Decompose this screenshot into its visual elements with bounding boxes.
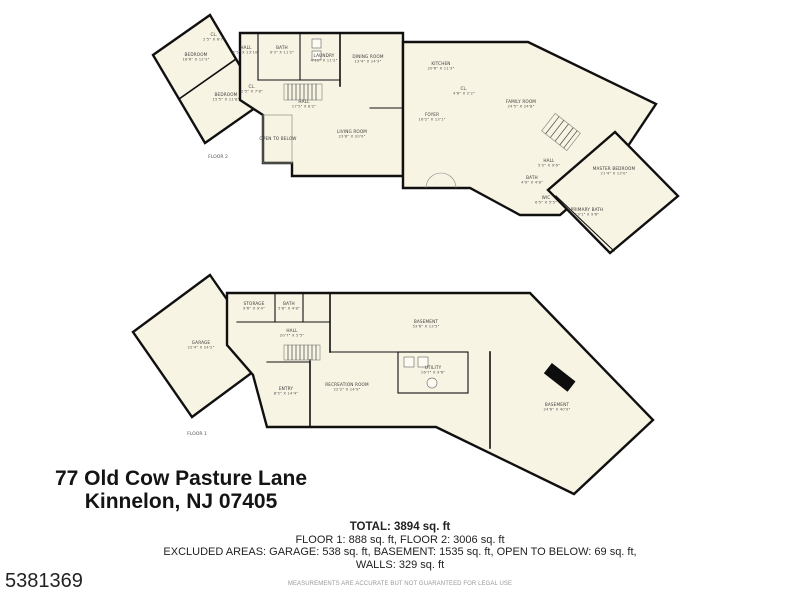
room-label-kitchen: KITCHEN20'6" X 11'3" (427, 61, 454, 71)
address-line1: 77 Old Cow Pasture Lane (50, 467, 312, 490)
utility-fixture-icon (404, 357, 414, 367)
summary-walls: WALLS: 329 sq. ft (0, 559, 800, 572)
room-label-basement: BASEMENT53'6" X 13'5" (412, 319, 439, 329)
floor1-plan: GARAGE22'4" X 24'2"STORAGE9'6" X 9'4"BAT… (133, 275, 653, 494)
room-label-laundry: LAUNDRY4'11" X 11'2" (310, 53, 337, 63)
water-heater-icon (427, 378, 437, 388)
property-address: 77 Old Cow Pasture Lane Kinnelon, NJ 074… (50, 467, 312, 513)
address-line2: Kinnelon, NJ 07405 (50, 490, 312, 513)
floor1-caption: FLOOR 1 (187, 431, 207, 437)
floor2-caption: FLOOR 2 (208, 154, 228, 160)
room-label-bedroom: BEDROOM15'5" X 11'8" (212, 92, 239, 102)
room-label-primary-bath: PRIMARY BATH13'1" X 9'6" (571, 207, 604, 217)
room-label-living-room: LIVING ROOM23'8" X 20'0" (337, 129, 367, 139)
disclaimer: MEASUREMENTS ARE ACCURATE BUT NOT GUARAN… (0, 581, 800, 587)
room-label-basement: BASEMENT24'6" X 40'9" (543, 402, 570, 412)
floor2-plan: BEDROOM16'6" X 12'3"BEDROOM15'5" X 11'8"… (153, 15, 678, 253)
summary-floors: FLOOR 1: 888 sq. ft, FLOOR 2: 3006 sq. f… (0, 534, 800, 547)
floor-plan-page: BEDROOM16'6" X 12'3"BEDROOM15'5" X 11'8"… (0, 0, 800, 600)
room-label-open-to-below: OPEN TO BELOW (259, 136, 296, 141)
room-label-bedroom: BEDROOM16'6" X 12'3" (182, 52, 209, 62)
summary-total: TOTAL: 3894 sq. ft (0, 521, 800, 534)
washer-icon (312, 39, 321, 48)
room-label-dining-room: DINING ROOM13'4" X 14'3" (352, 54, 384, 64)
area-summary: TOTAL: 3894 sq. ft FLOOR 1: 888 sq. ft, … (0, 521, 800, 571)
room-label-family-room: FAMILY ROOM24'5" X 24'8" (506, 99, 536, 109)
room-label-storage: STORAGE9'6" X 9'4" (243, 301, 265, 311)
summary-excluded: EXCLUDED AREAS: GARAGE: 538 sq. ft, BASE… (0, 546, 800, 559)
